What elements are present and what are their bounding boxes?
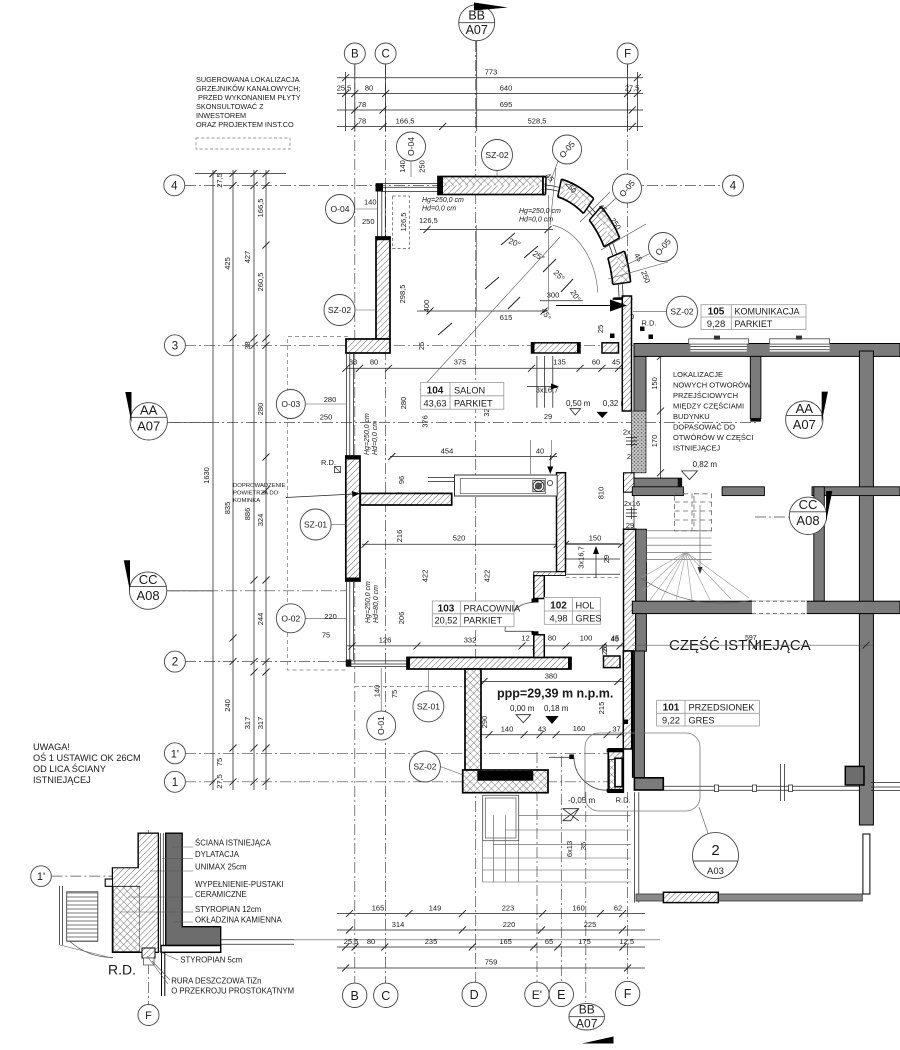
svg-text:206: 206	[397, 612, 406, 625]
svg-text:105: 105	[708, 307, 725, 318]
svg-text:CC: CC	[799, 497, 818, 512]
svg-text:2x16: 2x16	[624, 499, 640, 508]
svg-text:45: 45	[611, 635, 619, 644]
svg-text:Hd=0,0 cm: Hd=0,0 cm	[519, 217, 553, 224]
svg-text:43,63: 43,63	[424, 398, 447, 408]
svg-text:STYROPIAN 12cm: STYROPIAN 12cm	[195, 905, 261, 914]
svg-text:35: 35	[579, 842, 588, 850]
svg-text:27,5: 27,5	[215, 173, 224, 188]
svg-text:A07: A07	[466, 23, 488, 37]
svg-text:BB: BB	[579, 1003, 595, 1017]
svg-text:280: 280	[399, 397, 408, 410]
svg-text:SKONSULTOWAĆ Z: SKONSULTOWAĆ Z	[196, 102, 264, 111]
svg-text:PRACOWNIA: PRACOWNIA	[464, 603, 522, 613]
svg-text:25: 25	[417, 342, 426, 350]
svg-text:317: 317	[243, 717, 252, 730]
svg-text:615: 615	[500, 313, 513, 322]
svg-text:HOL: HOL	[576, 600, 595, 610]
svg-text:F: F	[145, 1010, 152, 1022]
svg-text:Hd=0,0 cm: Hd=0,0 cm	[372, 421, 379, 455]
svg-text:244: 244	[256, 613, 265, 626]
svg-text:O-04: O-04	[406, 137, 416, 156]
svg-text:62: 62	[614, 904, 622, 913]
svg-text:150: 150	[650, 377, 659, 390]
svg-text:80: 80	[370, 358, 378, 367]
svg-text:A03: A03	[707, 866, 724, 877]
svg-text:4: 4	[171, 180, 178, 192]
svg-text:597: 597	[745, 635, 757, 642]
svg-text:280: 280	[324, 395, 337, 404]
svg-text:OKŁADZINA KAMIENNA: OKŁADZINA KAMIENNA	[195, 916, 282, 925]
svg-text:KOMINKA: KOMINKA	[233, 498, 260, 504]
svg-text:0,50 m: 0,50 m	[566, 399, 591, 408]
svg-text:260,5: 260,5	[256, 273, 265, 292]
svg-text:126: 126	[379, 636, 392, 645]
svg-text:AA: AA	[140, 403, 158, 418]
svg-text:Hd=0,0 cm: Hd=0,0 cm	[422, 206, 456, 213]
svg-text:DOPASOWAĆ DO: DOPASOWAĆ DO	[673, 423, 735, 432]
svg-text:773: 773	[485, 68, 498, 77]
svg-text:75: 75	[215, 758, 224, 766]
svg-text:ppp=29,39 m n.p.m.: ppp=29,39 m n.p.m.	[497, 687, 613, 701]
svg-text:235: 235	[425, 937, 438, 946]
svg-text:96: 96	[397, 476, 406, 484]
svg-text:12: 12	[521, 634, 529, 643]
svg-text:OD LICA ŚCIANY: OD LICA ŚCIANY	[33, 763, 106, 774]
svg-text:12,5: 12,5	[619, 937, 634, 946]
svg-text:BUDYNKU: BUDYNKU	[673, 412, 710, 421]
svg-text:A07: A07	[137, 419, 160, 434]
svg-text:E: E	[557, 988, 565, 1002]
svg-text:0,18 m: 0,18 m	[544, 704, 569, 713]
svg-text:140: 140	[398, 160, 407, 173]
svg-text:103: 103	[438, 603, 455, 614]
svg-text:ISTNIEJĄCEJ: ISTNIEJĄCEJ	[33, 775, 91, 785]
svg-text:101: 101	[663, 703, 680, 714]
svg-text:CC: CC	[139, 572, 158, 587]
svg-text:332: 332	[464, 636, 477, 645]
svg-text:60: 60	[592, 358, 600, 367]
svg-text:R.D.: R.D.	[108, 962, 136, 978]
svg-text:9,22: 9,22	[662, 715, 680, 725]
svg-text:DOPROWADZENIE: DOPROWADZENIE	[233, 483, 286, 489]
svg-text:20,52: 20,52	[435, 616, 458, 626]
svg-text:BB: BB	[468, 9, 485, 23]
svg-text:-0,05 m: -0,05 m	[568, 796, 595, 805]
svg-text:75: 75	[390, 690, 399, 698]
svg-text:300: 300	[547, 291, 560, 300]
svg-text:SALON: SALON	[454, 385, 485, 395]
svg-text:135: 135	[553, 358, 566, 367]
svg-text:Hg=250,0 cm: Hg=250,0 cm	[365, 581, 372, 623]
svg-text:80: 80	[548, 634, 556, 643]
svg-text:O-04: O-04	[331, 204, 350, 214]
svg-text:PRZEDSIONEK: PRZEDSIONEK	[689, 703, 756, 713]
svg-text:37: 37	[612, 725, 620, 734]
svg-text:4,98: 4,98	[550, 613, 568, 623]
svg-text:45: 45	[612, 358, 620, 367]
svg-text:886: 886	[243, 508, 252, 521]
svg-text:ORAZ PROJEKTEM INST.CO: ORAZ PROJEKTEM INST.CO	[196, 120, 294, 129]
svg-text:PARKIET: PARKIET	[454, 398, 493, 408]
svg-text:LOKALIZACJE: LOKALIZACJE	[673, 370, 723, 379]
svg-text:SZ-01: SZ-01	[304, 520, 327, 530]
svg-text:225: 225	[584, 920, 597, 929]
svg-text:OTWÓRÓW W CZĘŚCI: OTWÓRÓW W CZĘŚCI	[673, 433, 753, 442]
svg-text:215: 215	[597, 702, 606, 715]
svg-text:R.D.: R.D.	[616, 796, 631, 805]
svg-text:Hg=250,0 cm: Hg=250,0 cm	[422, 197, 464, 204]
svg-text:376: 376	[421, 415, 430, 428]
svg-text:220: 220	[324, 612, 337, 621]
svg-text:1: 1	[172, 777, 178, 789]
svg-text:Hg=250,0 cm: Hg=250,0 cm	[519, 208, 561, 215]
svg-text:1': 1'	[37, 871, 45, 883]
svg-text:695: 695	[500, 100, 513, 109]
svg-text:PRZEJŚCIOWYCH: PRZEJŚCIOWYCH	[673, 391, 738, 400]
svg-text:INWESTOREM: INWESTOREM	[196, 111, 246, 120]
svg-text:0,00 m: 0,00 m	[510, 704, 535, 713]
svg-text:A08: A08	[137, 588, 160, 603]
svg-text:CERAMICZNE: CERAMICZNE	[195, 890, 247, 899]
svg-text:MIĘDZY CZĘŚCIAMI: MIĘDZY CZĘŚCIAMI	[673, 402, 744, 411]
svg-text:380: 380	[545, 672, 558, 681]
svg-text:40: 40	[536, 447, 544, 456]
svg-text:324: 324	[256, 514, 265, 527]
svg-text:835: 835	[223, 502, 232, 515]
svg-text:B: B	[351, 989, 359, 1003]
svg-text:250: 250	[418, 160, 427, 173]
svg-text:GRZEJNIKÓW KANAŁOWYCH;: GRZEJNIKÓW KANAŁOWYCH;	[196, 84, 301, 93]
svg-text:166,5: 166,5	[256, 199, 265, 218]
svg-text:O-01: O-01	[376, 716, 386, 735]
svg-text:OŚ 1 USTAWIC OK 26CM: OŚ 1 USTAWIC OK 26CM	[33, 752, 141, 763]
svg-text:175: 175	[578, 937, 591, 946]
svg-text:C: C	[381, 989, 390, 1003]
svg-text:UNIMAX 25cm: UNIMAX 25cm	[195, 863, 247, 872]
svg-text:UWAGA!: UWAGA!	[33, 742, 70, 752]
svg-text:25,5: 25,5	[337, 84, 352, 93]
svg-text:166,5: 166,5	[396, 117, 415, 126]
svg-text:ISTNIEJĄCEJ: ISTNIEJĄCEJ	[673, 444, 720, 453]
svg-text:75: 75	[322, 631, 330, 640]
svg-text:170: 170	[650, 435, 659, 448]
svg-text:SZ-02: SZ-02	[670, 307, 693, 317]
svg-text:126,5: 126,5	[399, 213, 408, 232]
svg-text:78: 78	[358, 100, 366, 109]
svg-text:160: 160	[573, 724, 586, 733]
svg-text:2: 2	[711, 842, 719, 859]
svg-text:165: 165	[372, 904, 385, 913]
svg-text:PARKIET: PARKIET	[464, 616, 503, 626]
svg-text:SZ-01: SZ-01	[417, 701, 440, 711]
svg-text:422: 422	[421, 570, 430, 583]
svg-text:4: 4	[730, 181, 737, 193]
svg-text:80: 80	[365, 84, 373, 93]
svg-text:SUGEROWANA LOKALIZACJA: SUGEROWANA LOKALIZACJA	[196, 75, 300, 84]
svg-text:80: 80	[367, 937, 375, 946]
svg-text:240: 240	[223, 699, 232, 712]
svg-text:Hg=250,0 cm: Hg=250,0 cm	[364, 413, 371, 455]
svg-text:0,82 m: 0,82 m	[693, 460, 718, 469]
svg-text:RURA DESZCZOWA TiZn: RURA DESZCZOWA TiZn	[171, 977, 261, 986]
svg-text:WYPEŁNIENIE-PUSTAKI: WYPEŁNIENIE-PUSTAKI	[195, 880, 284, 889]
svg-text:140: 140	[501, 725, 514, 734]
svg-text:280: 280	[256, 403, 265, 416]
svg-text:104: 104	[427, 385, 444, 396]
svg-text:F: F	[624, 49, 631, 61]
svg-text:25: 25	[600, 644, 609, 652]
svg-text:250: 250	[320, 413, 333, 422]
svg-text:528,5: 528,5	[528, 117, 547, 126]
svg-text:A07: A07	[793, 417, 816, 432]
svg-text:27,5: 27,5	[215, 774, 224, 789]
svg-text:O-03: O-03	[281, 399, 300, 409]
svg-text:1630: 1630	[202, 467, 211, 484]
svg-text:PARKIET: PARKIET	[735, 319, 773, 329]
svg-text:2: 2	[172, 657, 178, 669]
svg-text:GRES: GRES	[689, 715, 715, 725]
svg-text:Hd=80,0 cm: Hd=80,0 cm	[373, 585, 380, 623]
svg-text:SZ-02: SZ-02	[413, 762, 436, 772]
svg-text:25: 25	[596, 325, 605, 333]
svg-text:SZ-02: SZ-02	[485, 150, 508, 160]
svg-text:POWIETRZA DO: POWIETRZA DO	[233, 491, 279, 497]
svg-text:6x13: 6x13	[565, 841, 574, 857]
svg-text:78: 78	[358, 117, 366, 126]
svg-text:3: 3	[172, 340, 178, 352]
svg-text:375: 375	[454, 358, 467, 367]
svg-text:STYROPIAN 5cm: STYROPIAN 5cm	[180, 956, 242, 965]
svg-text:R.D.: R.D.	[321, 458, 336, 467]
svg-text:3x16,7: 3x16,7	[577, 546, 586, 569]
svg-text:NOWYCH OTWORÓW: NOWYCH OTWORÓW	[673, 381, 752, 390]
svg-text:SZ-02: SZ-02	[328, 305, 351, 315]
svg-text:PRZED WYKONANIEM PŁYTY: PRZED WYKONANIEM PŁYTY	[198, 93, 301, 102]
svg-text:A08: A08	[796, 513, 819, 528]
svg-text:F: F	[624, 987, 632, 1001]
svg-text:25,5: 25,5	[344, 937, 359, 946]
svg-text:520: 520	[453, 534, 466, 543]
svg-text:29: 29	[544, 412, 552, 421]
svg-text:250: 250	[362, 217, 375, 226]
svg-text:427: 427	[243, 251, 252, 264]
svg-text:216: 216	[395, 530, 404, 543]
svg-text:GRES: GRES	[576, 613, 602, 623]
svg-text:298,5: 298,5	[398, 285, 407, 304]
svg-text:425: 425	[223, 257, 232, 270]
svg-text:9,28: 9,28	[707, 319, 726, 330]
svg-text:R.D.: R.D.	[642, 319, 657, 328]
svg-text:O PRZEKROJU PROSTOKĄTNYM: O PRZEKROJU PROSTOKĄTNYM	[171, 987, 294, 996]
svg-text:A07: A07	[576, 1017, 598, 1031]
svg-text:400: 400	[422, 300, 431, 313]
svg-text:43: 43	[538, 725, 546, 734]
svg-text:102: 102	[550, 600, 567, 611]
svg-text:100: 100	[580, 634, 593, 643]
svg-text:D: D	[470, 988, 479, 1002]
svg-text:220: 220	[503, 920, 516, 929]
svg-text:454: 454	[441, 447, 454, 456]
svg-text:317: 317	[256, 717, 265, 730]
svg-text:150: 150	[589, 534, 602, 543]
svg-text:E': E'	[532, 988, 542, 1002]
svg-text:B: B	[351, 49, 359, 61]
svg-text:810: 810	[596, 487, 605, 500]
svg-text:KOMUNIKACJA: KOMUNIKACJA	[735, 307, 800, 317]
svg-text:422: 422	[483, 570, 492, 583]
svg-text:126,5: 126,5	[419, 216, 438, 225]
svg-text:ŚCIANA ISTNIEJĄCA: ŚCIANA ISTNIEJĄCA	[195, 839, 272, 848]
svg-text:O-02: O-02	[281, 613, 300, 623]
svg-text:160: 160	[572, 904, 585, 913]
svg-text:149: 149	[429, 904, 442, 913]
svg-text:314: 314	[392, 920, 405, 929]
svg-text:140: 140	[373, 685, 382, 698]
svg-text:C: C	[381, 49, 389, 61]
svg-text:1': 1'	[171, 748, 179, 760]
svg-text:223: 223	[502, 904, 515, 913]
svg-text:DYLATACJA: DYLATACJA	[195, 850, 240, 859]
svg-text:140: 140	[364, 198, 377, 207]
svg-text:759: 759	[485, 958, 498, 967]
svg-text:65: 65	[545, 937, 553, 946]
svg-text:AA: AA	[796, 401, 814, 416]
svg-text:38: 38	[243, 341, 252, 349]
svg-text:165: 165	[499, 937, 512, 946]
svg-text:640: 640	[500, 84, 513, 93]
svg-text:27,5: 27,5	[625, 84, 640, 93]
